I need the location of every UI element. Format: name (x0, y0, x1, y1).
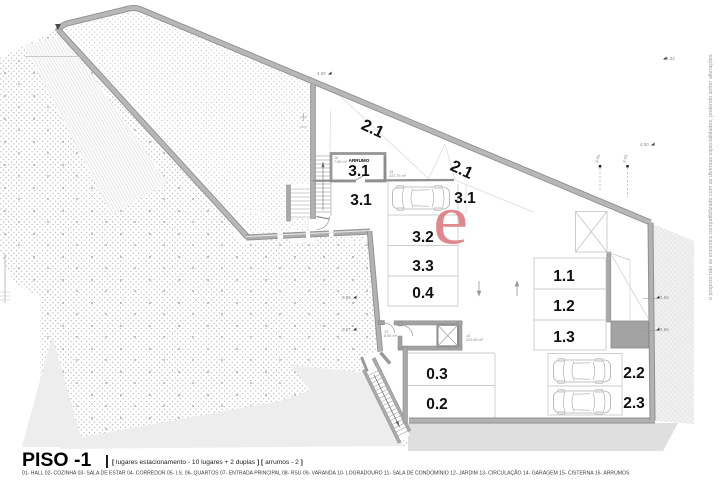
svg-text:3.2: 3.2 (412, 229, 434, 246)
svg-text:4.00: 4.00 (317, 71, 326, 76)
svg-text:8.60 m²: 8.60 m² (384, 334, 398, 338)
svg-text:3.3: 3.3 (412, 258, 434, 275)
svg-text:251.60 m²: 251.60 m² (466, 338, 484, 342)
svg-text:3.1: 3.1 (350, 192, 372, 209)
svg-text:0.65: 0.65 (342, 295, 351, 300)
svg-text:3.1: 3.1 (454, 190, 476, 207)
svg-text:1.3: 1.3 (553, 329, 575, 346)
svg-text:0.2: 0.2 (426, 396, 448, 413)
svg-text:4.32: 4.32 (666, 56, 675, 61)
svg-text:4.00: 4.00 (640, 142, 649, 147)
svg-text:2.3: 2.3 (623, 395, 645, 412)
svg-text:01- HALL 02- COZINHA 03- SALA: 01- HALL 02- COZINHA 03- SALA DE ESTAR 0… (22, 470, 630, 477)
svg-text:3.1: 3.1 (348, 163, 370, 180)
svg-text:1.2: 1.2 (553, 298, 575, 315)
svg-text:7.55 m²: 7.55 m² (334, 160, 348, 164)
svg-text:4.56: 4.56 (660, 295, 669, 300)
svg-text:4.65: 4.65 (660, 327, 669, 332)
svg-text:222.75 m²: 222.75 m² (389, 174, 407, 178)
svg-text:o projecto não se encontra com: o projecto não se encontra compatibiliza… (708, 54, 714, 300)
svg-text:1.1: 1.1 (553, 268, 575, 285)
svg-text:[ lugares estacionamento - 10: [ lugares estacionamento - 10 lugares + … (112, 459, 303, 466)
svg-text:0.67: 0.67 (342, 327, 351, 332)
svg-text:2.2: 2.2 (623, 365, 645, 382)
svg-text:|: | (105, 452, 109, 468)
svg-text:0.4: 0.4 (412, 285, 434, 302)
svg-text:0.3: 0.3 (426, 366, 448, 383)
svg-text:PISO -1: PISO -1 (22, 449, 92, 471)
